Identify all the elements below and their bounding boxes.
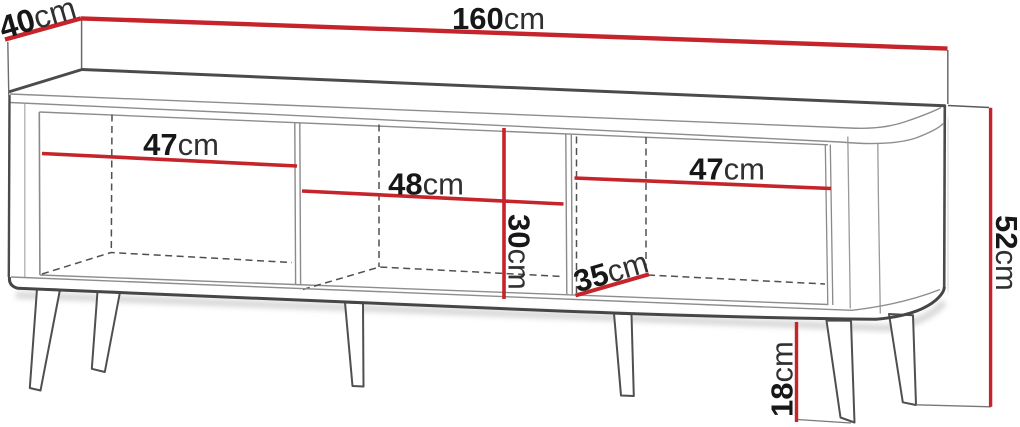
svg-text:47cm: 47cm (689, 152, 765, 187)
svg-text:40cm: 40cm (0, 0, 80, 46)
svg-text:47cm: 47cm (143, 127, 219, 162)
svg-text:52cm: 52cm (989, 215, 1020, 291)
svg-text:18cm: 18cm (765, 341, 800, 417)
svg-text:30cm: 30cm (502, 214, 537, 290)
svg-text:35cm: 35cm (570, 244, 653, 299)
svg-text:48cm: 48cm (388, 167, 464, 202)
svg-text:160cm: 160cm (452, 1, 545, 36)
